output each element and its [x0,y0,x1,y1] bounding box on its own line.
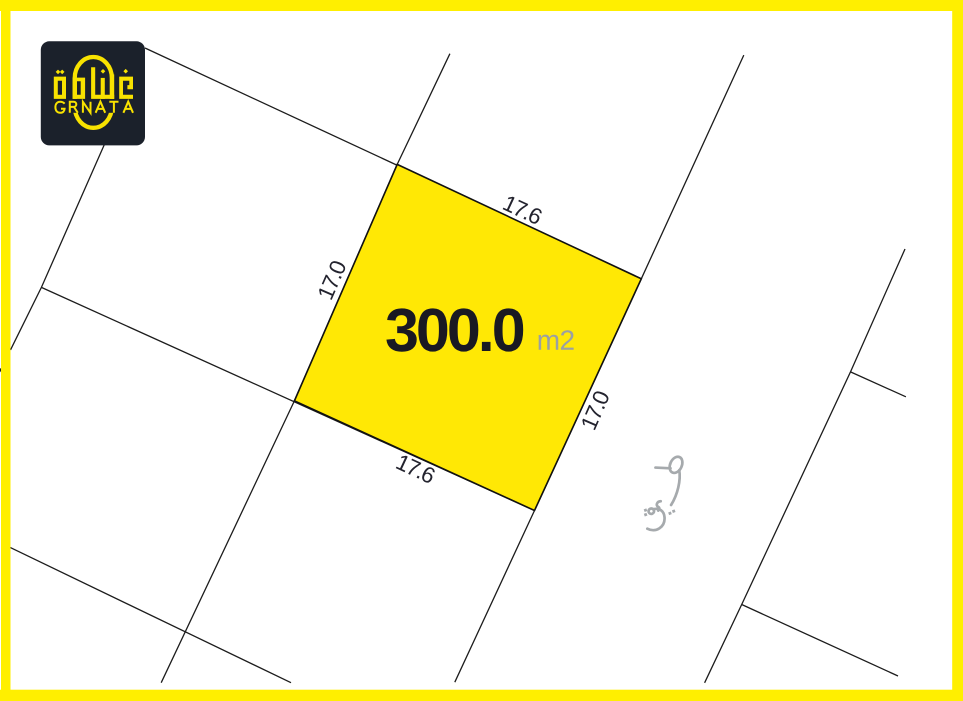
svg-text:300.0: 300.0 [385,296,524,364]
svg-text:m2: m2 [537,325,575,356]
